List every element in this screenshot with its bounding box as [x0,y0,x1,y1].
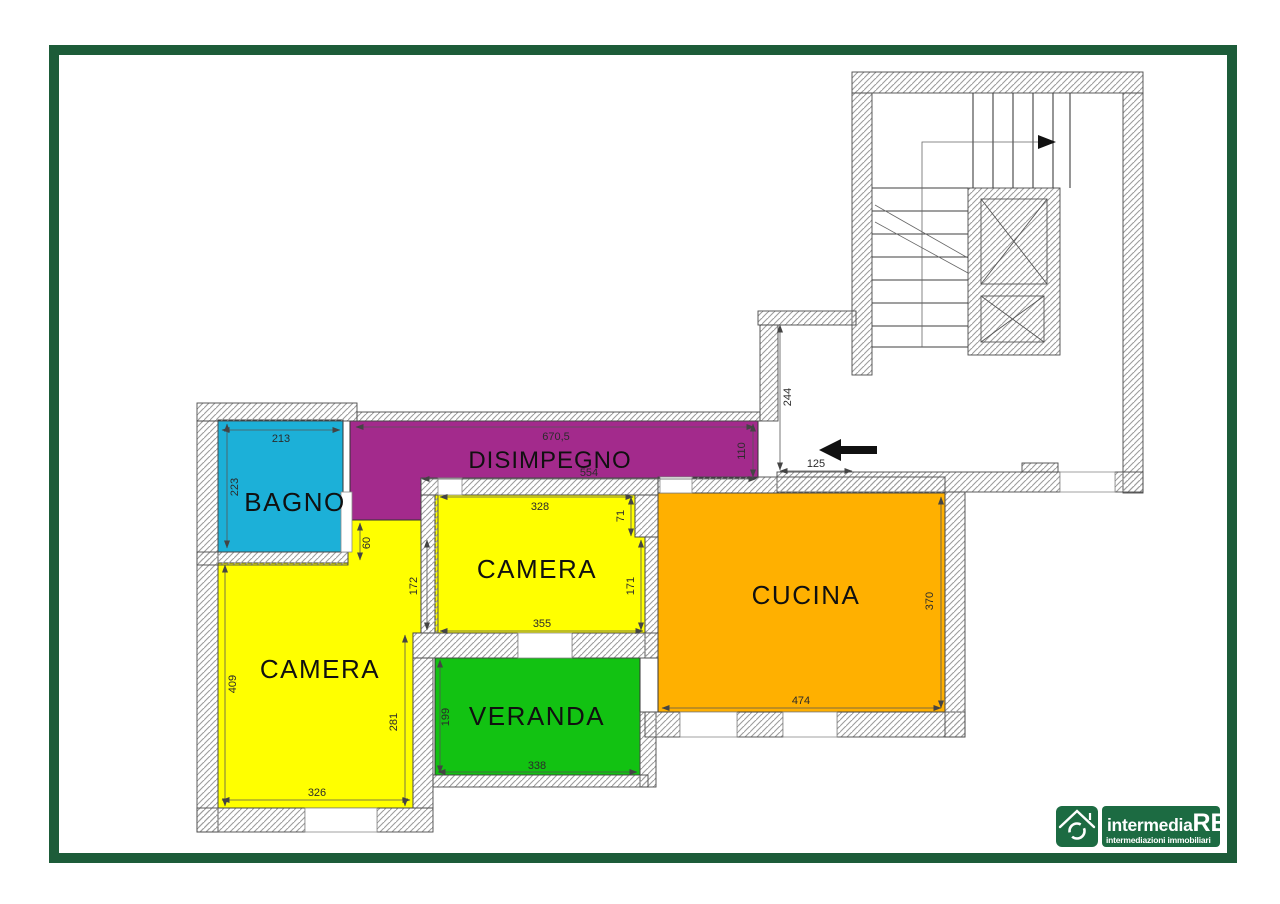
elevator-shaft-wall [968,188,1060,355]
corridor-left-wall [760,325,778,421]
dim-camera1-bottom: 355 [533,618,551,630]
dim-entry-width: 125 [807,458,825,470]
room-label-bagno: BAGNO [244,487,345,517]
camera2-bottom-wall-left [197,808,305,832]
stair-break-line-2 [875,222,968,273]
wall-camera1-cucina-upper [635,495,658,537]
veranda-parapet [433,775,648,787]
dim-bagno-left: 223 [229,478,241,496]
dim-entry-height: 244 [782,388,794,406]
dim-disimpegno-right: 110 [736,442,748,460]
stairwell-top-wall [852,72,1143,93]
room-label-disimpegno: DISIMPEGNO [468,447,631,474]
stairwell-left-wall [852,93,872,375]
cucina-bottom-wall-a [645,712,680,737]
corridor-top-wall [758,311,856,325]
camera1-door-opening [438,478,462,495]
apartment-top-wall-thin [357,412,760,421]
logo-tagline: intermediazioni immobiliari [1106,835,1211,845]
room-label-camera1: CAMERA [477,554,597,584]
dim-camera1-right: 171 [625,577,637,595]
cucina-bottom-wall-b [737,712,783,737]
dim-camera2-bottom: 326 [308,787,326,799]
stair-treads-upper [973,93,1070,188]
stair-treads-left [872,211,968,347]
apartment-top-wall-thick [197,403,357,421]
room-label-veranda: VERANDA [469,701,605,731]
cucina-window-1 [680,712,737,737]
dim-bagno-top: 213 [272,433,290,445]
logo-brand-suffix: RE [1193,809,1228,837]
dim-camera1-left: 172 [408,577,420,595]
cucina-right-wall [945,492,965,737]
dim-camera2-right: 281 [388,713,400,731]
logo-brand-prefix: intermedia [1107,815,1193,835]
cucina-window-2 [783,712,837,737]
stair-break-line-1 [875,205,968,258]
camera2-bottom-wall-right [377,808,433,832]
camera1-veranda-opening [518,633,572,658]
dim-cucina-bottom: 474 [792,695,810,707]
wall-below-camera1-right [572,633,658,658]
stairwell-window [1060,472,1115,492]
dim-camera2-left: 409 [227,675,239,693]
dim-camera1-right-upper: 71 [615,510,627,522]
floor-plan-page: 213 223 670,5 554 110 328 71 171 355 172… [0,0,1280,904]
room-label-camera2: CAMERA [260,654,380,684]
bagno-bottom-wall [197,552,348,565]
corridor-wall-notch [1022,463,1058,472]
dim-camera1-door: 60 [361,537,373,549]
dim-cucina-right: 370 [924,592,936,610]
wall-camera1-left [421,495,438,633]
entrance-arrow-icon [819,439,877,461]
floor-plan-svg: 213 223 670,5 554 110 328 71 171 355 172… [0,0,1280,904]
dim-veranda-left: 199 [440,708,452,726]
dim-veranda-bottom: 338 [528,760,546,772]
dim-camera1-top: 328 [531,501,549,513]
agency-logo: intermediaRE intermediazioni immobiliari [1056,806,1227,847]
stairwell-right-wall [1123,93,1143,493]
apartment-left-wall [197,421,218,832]
camera2-right-wall [413,658,433,808]
wall-below-camera1-left [413,633,518,658]
room-label-cucina: CUCINA [752,580,861,610]
dim-disimpegno-top: 670,5 [542,431,570,443]
corridor-bottom-wall-right [1115,472,1143,492]
camera2-window [305,808,377,832]
